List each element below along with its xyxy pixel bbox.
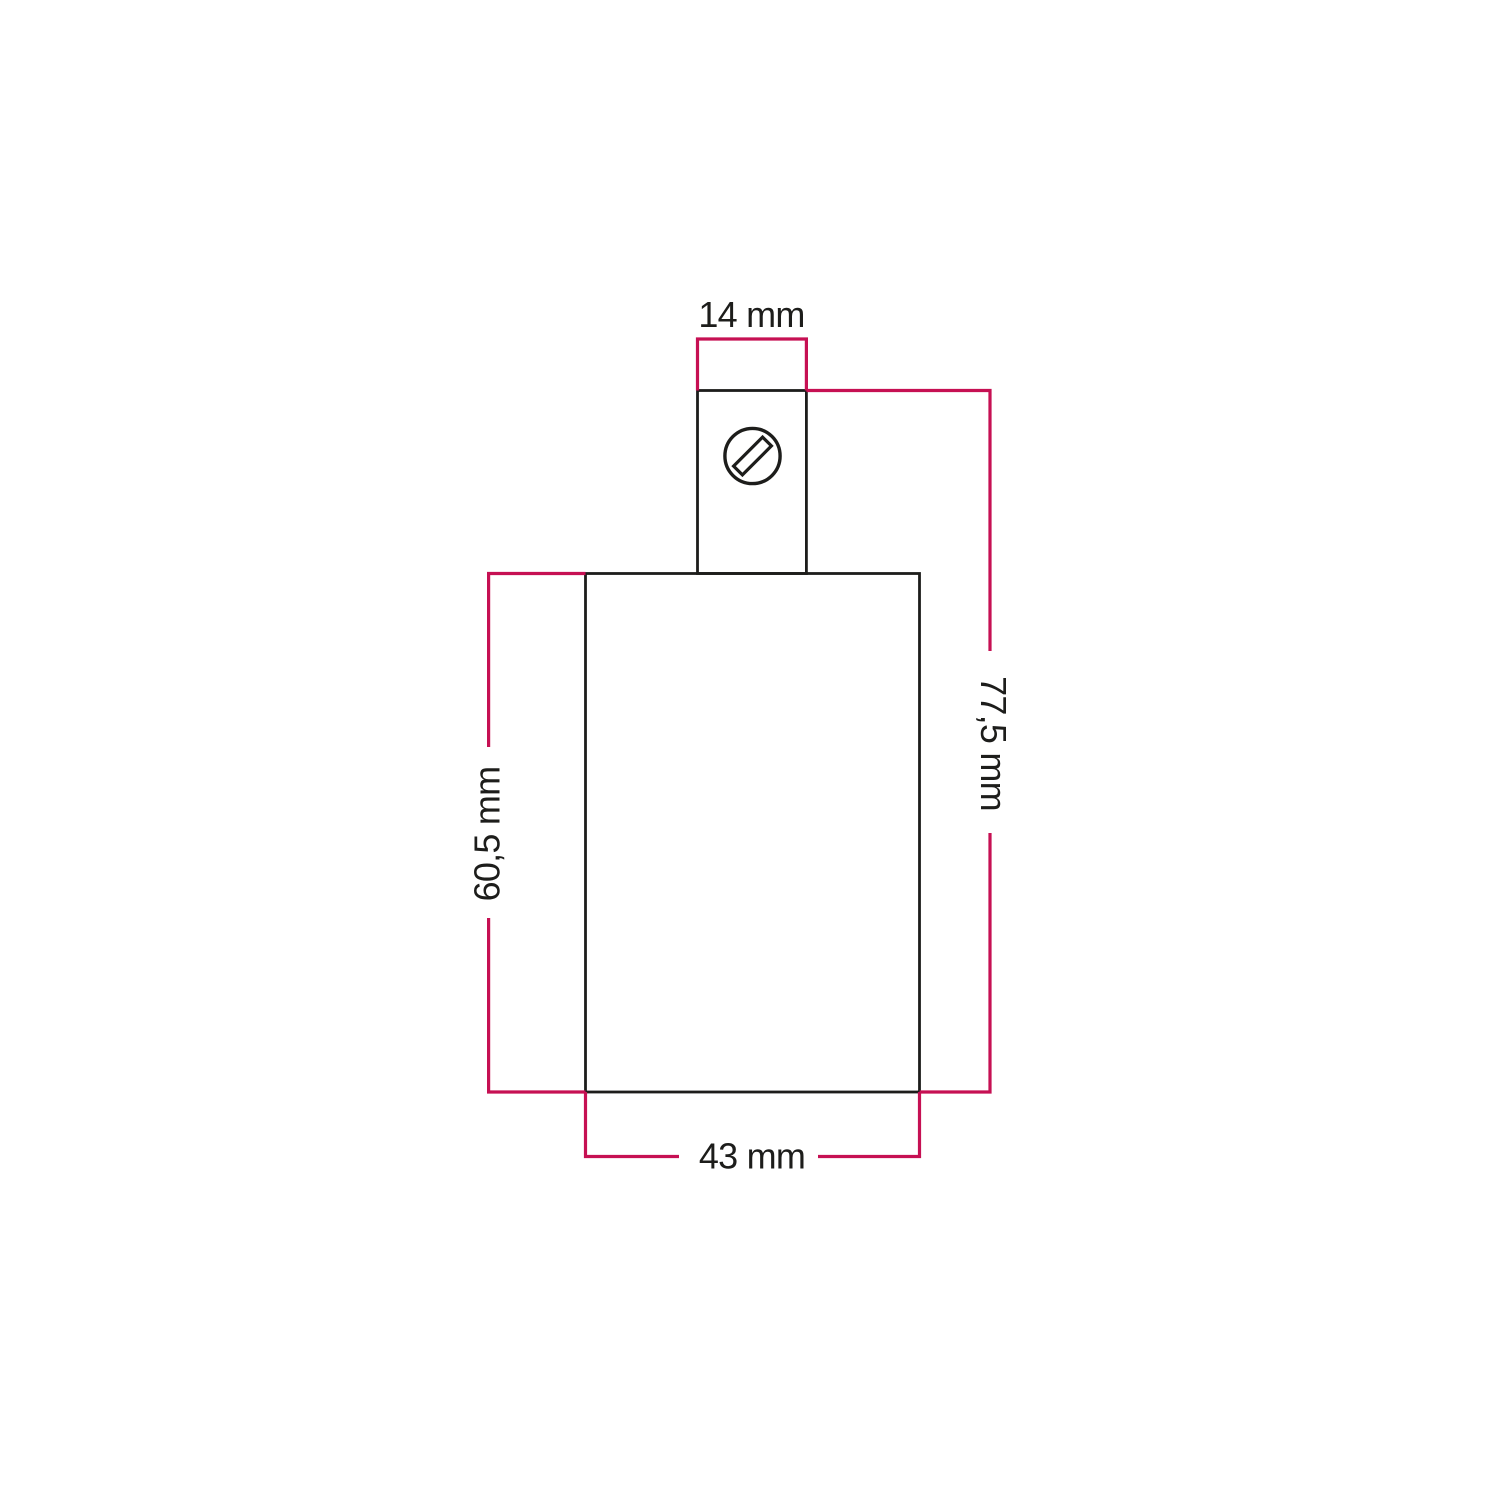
svg-text:43 mm: 43 mm bbox=[699, 1136, 805, 1177]
svg-text:77,5 mm: 77,5 mm bbox=[973, 676, 1014, 811]
svg-text:14 mm: 14 mm bbox=[698, 294, 804, 335]
svg-text:60,5 mm: 60,5 mm bbox=[467, 767, 508, 902]
